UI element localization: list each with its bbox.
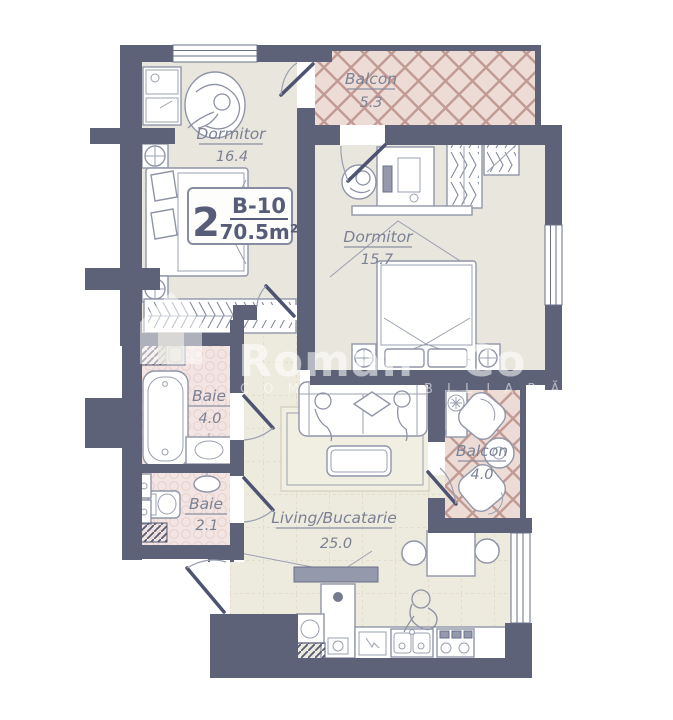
bathtub-icon xyxy=(143,371,188,467)
room-area: 15.7 xyxy=(361,252,394,268)
floor-plan: Dormitor 16.4 Balcon 5.3 Dormitor 15.7 B… xyxy=(0,0,673,720)
unit-code: B-10 xyxy=(232,194,286,218)
dresser-icon xyxy=(143,67,181,125)
room-name: Baie xyxy=(189,495,223,513)
unit-rooms-count: 2 xyxy=(192,200,220,246)
window-icon xyxy=(511,533,530,623)
kitchen-sink-icon xyxy=(391,629,433,657)
dining-table-icon xyxy=(427,531,475,576)
bathroom-sink-icon xyxy=(186,433,232,466)
room-area: 5.3 xyxy=(359,95,382,111)
watermark-tagline-right: B I L I A R Ă xyxy=(424,381,564,397)
tall-cabinet-icon xyxy=(321,584,355,658)
nightstand-icon xyxy=(142,144,168,168)
sofa-icon xyxy=(299,382,427,436)
desk-computer-icon xyxy=(377,147,434,207)
watermark-brand-left: Roman xyxy=(238,336,414,387)
window-icon xyxy=(173,45,257,62)
toilet-icon xyxy=(148,491,180,518)
room-area: 4.0 xyxy=(470,467,493,483)
watermark-tagline-left: C O M xyxy=(240,382,304,397)
watermark-brand-right: Co xyxy=(462,336,527,387)
room-name: Dormitor xyxy=(196,125,267,143)
room-name: Living/Bucatarie xyxy=(271,509,397,527)
unit-badge: 2 B-10 70.5m² xyxy=(188,188,298,246)
unit-area: 70.5m² xyxy=(220,220,299,244)
watermark-house-door xyxy=(158,332,184,364)
window-icon xyxy=(545,225,562,305)
dining-chair-icon xyxy=(402,541,426,565)
room-area: 25.0 xyxy=(320,536,352,552)
door-entrance-icon xyxy=(187,560,230,614)
stove-icon xyxy=(437,629,474,657)
dishwasher-icon xyxy=(297,614,324,643)
coffee-table-icon xyxy=(327,446,391,476)
room-name: Baie xyxy=(192,387,226,405)
dining-chair-icon xyxy=(475,539,499,563)
wardrobe-icon xyxy=(447,142,482,208)
wardrobe-icon xyxy=(484,142,519,175)
room-area: 2.1 xyxy=(195,518,218,534)
room-name: Balcon xyxy=(345,70,397,88)
room-area: 16.4 xyxy=(216,149,248,165)
room-name: Dormitor xyxy=(343,228,414,246)
room-name: Balcon xyxy=(456,442,508,460)
technical-shaft-icon xyxy=(297,643,325,659)
room-area: 4.0 xyxy=(198,411,221,427)
